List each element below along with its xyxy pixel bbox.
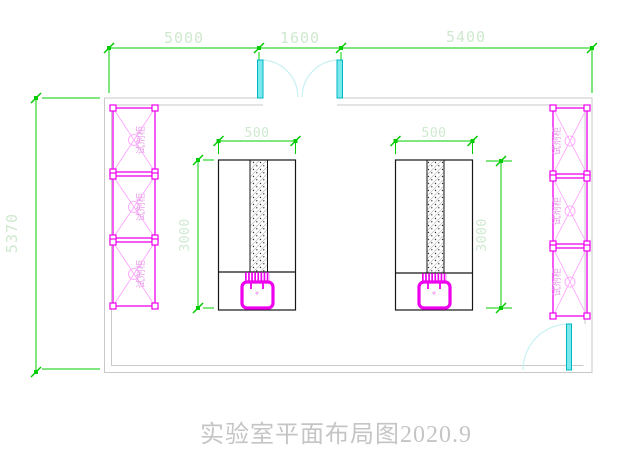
double-door-top: [258, 60, 343, 98]
cabinet-label: 试剂柜: [135, 125, 147, 154]
door-leaf: [258, 60, 264, 98]
door-leaf: [567, 324, 572, 370]
cabinet-left-3: 试剂柜: [110, 239, 158, 309]
lab-bench-right: [396, 160, 473, 310]
dim-text-500: 500: [422, 126, 447, 141]
door-swing-arc: [523, 324, 569, 370]
dim-text-3000: 3000: [475, 218, 490, 251]
sink-drain: [432, 291, 435, 294]
dim-text-5370: 5370: [3, 213, 21, 253]
bench-reagent-strip: [427, 160, 444, 273]
single-door-right: [523, 324, 572, 370]
door-opening-top: [263, 97, 337, 108]
dim-text-3000: 3000: [178, 218, 193, 251]
door-opening-right: [584, 324, 588, 366]
dim-text-1600: 1600: [280, 29, 320, 47]
lab-bench-left: [219, 160, 296, 310]
cabinet-label: 试剂柜: [551, 196, 563, 225]
drawing-title: 实验室平面布局图2020.9: [200, 421, 472, 448]
cabinet-label: 试剂柜: [551, 126, 563, 155]
cabinet-left-1: 试剂柜: [110, 105, 158, 175]
cabinet-left-2: 试剂柜: [110, 173, 158, 241]
door-swing-arc: [261, 60, 298, 97]
door-leaf: [337, 60, 343, 98]
cabinet-right-2: 试剂柜: [550, 175, 590, 247]
lab-floor-plan: 5000 1600 5400 5370 试剂柜: [0, 0, 619, 469]
bench-reagent-strip: [250, 160, 268, 272]
cabinet-right-3: 试剂柜: [550, 245, 590, 319]
dim-text-5400: 5400: [446, 28, 486, 46]
cabinet-label: 试剂柜: [551, 267, 563, 296]
cabinet-label: 试剂柜: [135, 259, 147, 288]
dimension-left: 5370: [3, 93, 100, 377]
cabinet-column-right: 试剂柜 试剂柜 试剂柜: [550, 105, 590, 319]
cabinet-column-left: 试剂柜 试剂柜 试剂柜: [110, 105, 158, 309]
cabinet-label: 试剂柜: [135, 192, 147, 221]
sink-drain: [255, 291, 258, 294]
dim-text-500: 500: [245, 126, 270, 141]
dimension-top: 5000 1600 5400: [104, 28, 597, 96]
door-swing-arc: [302, 60, 339, 97]
cabinet-right-1: 试剂柜: [550, 105, 590, 177]
dim-text-5000: 5000: [164, 29, 204, 47]
